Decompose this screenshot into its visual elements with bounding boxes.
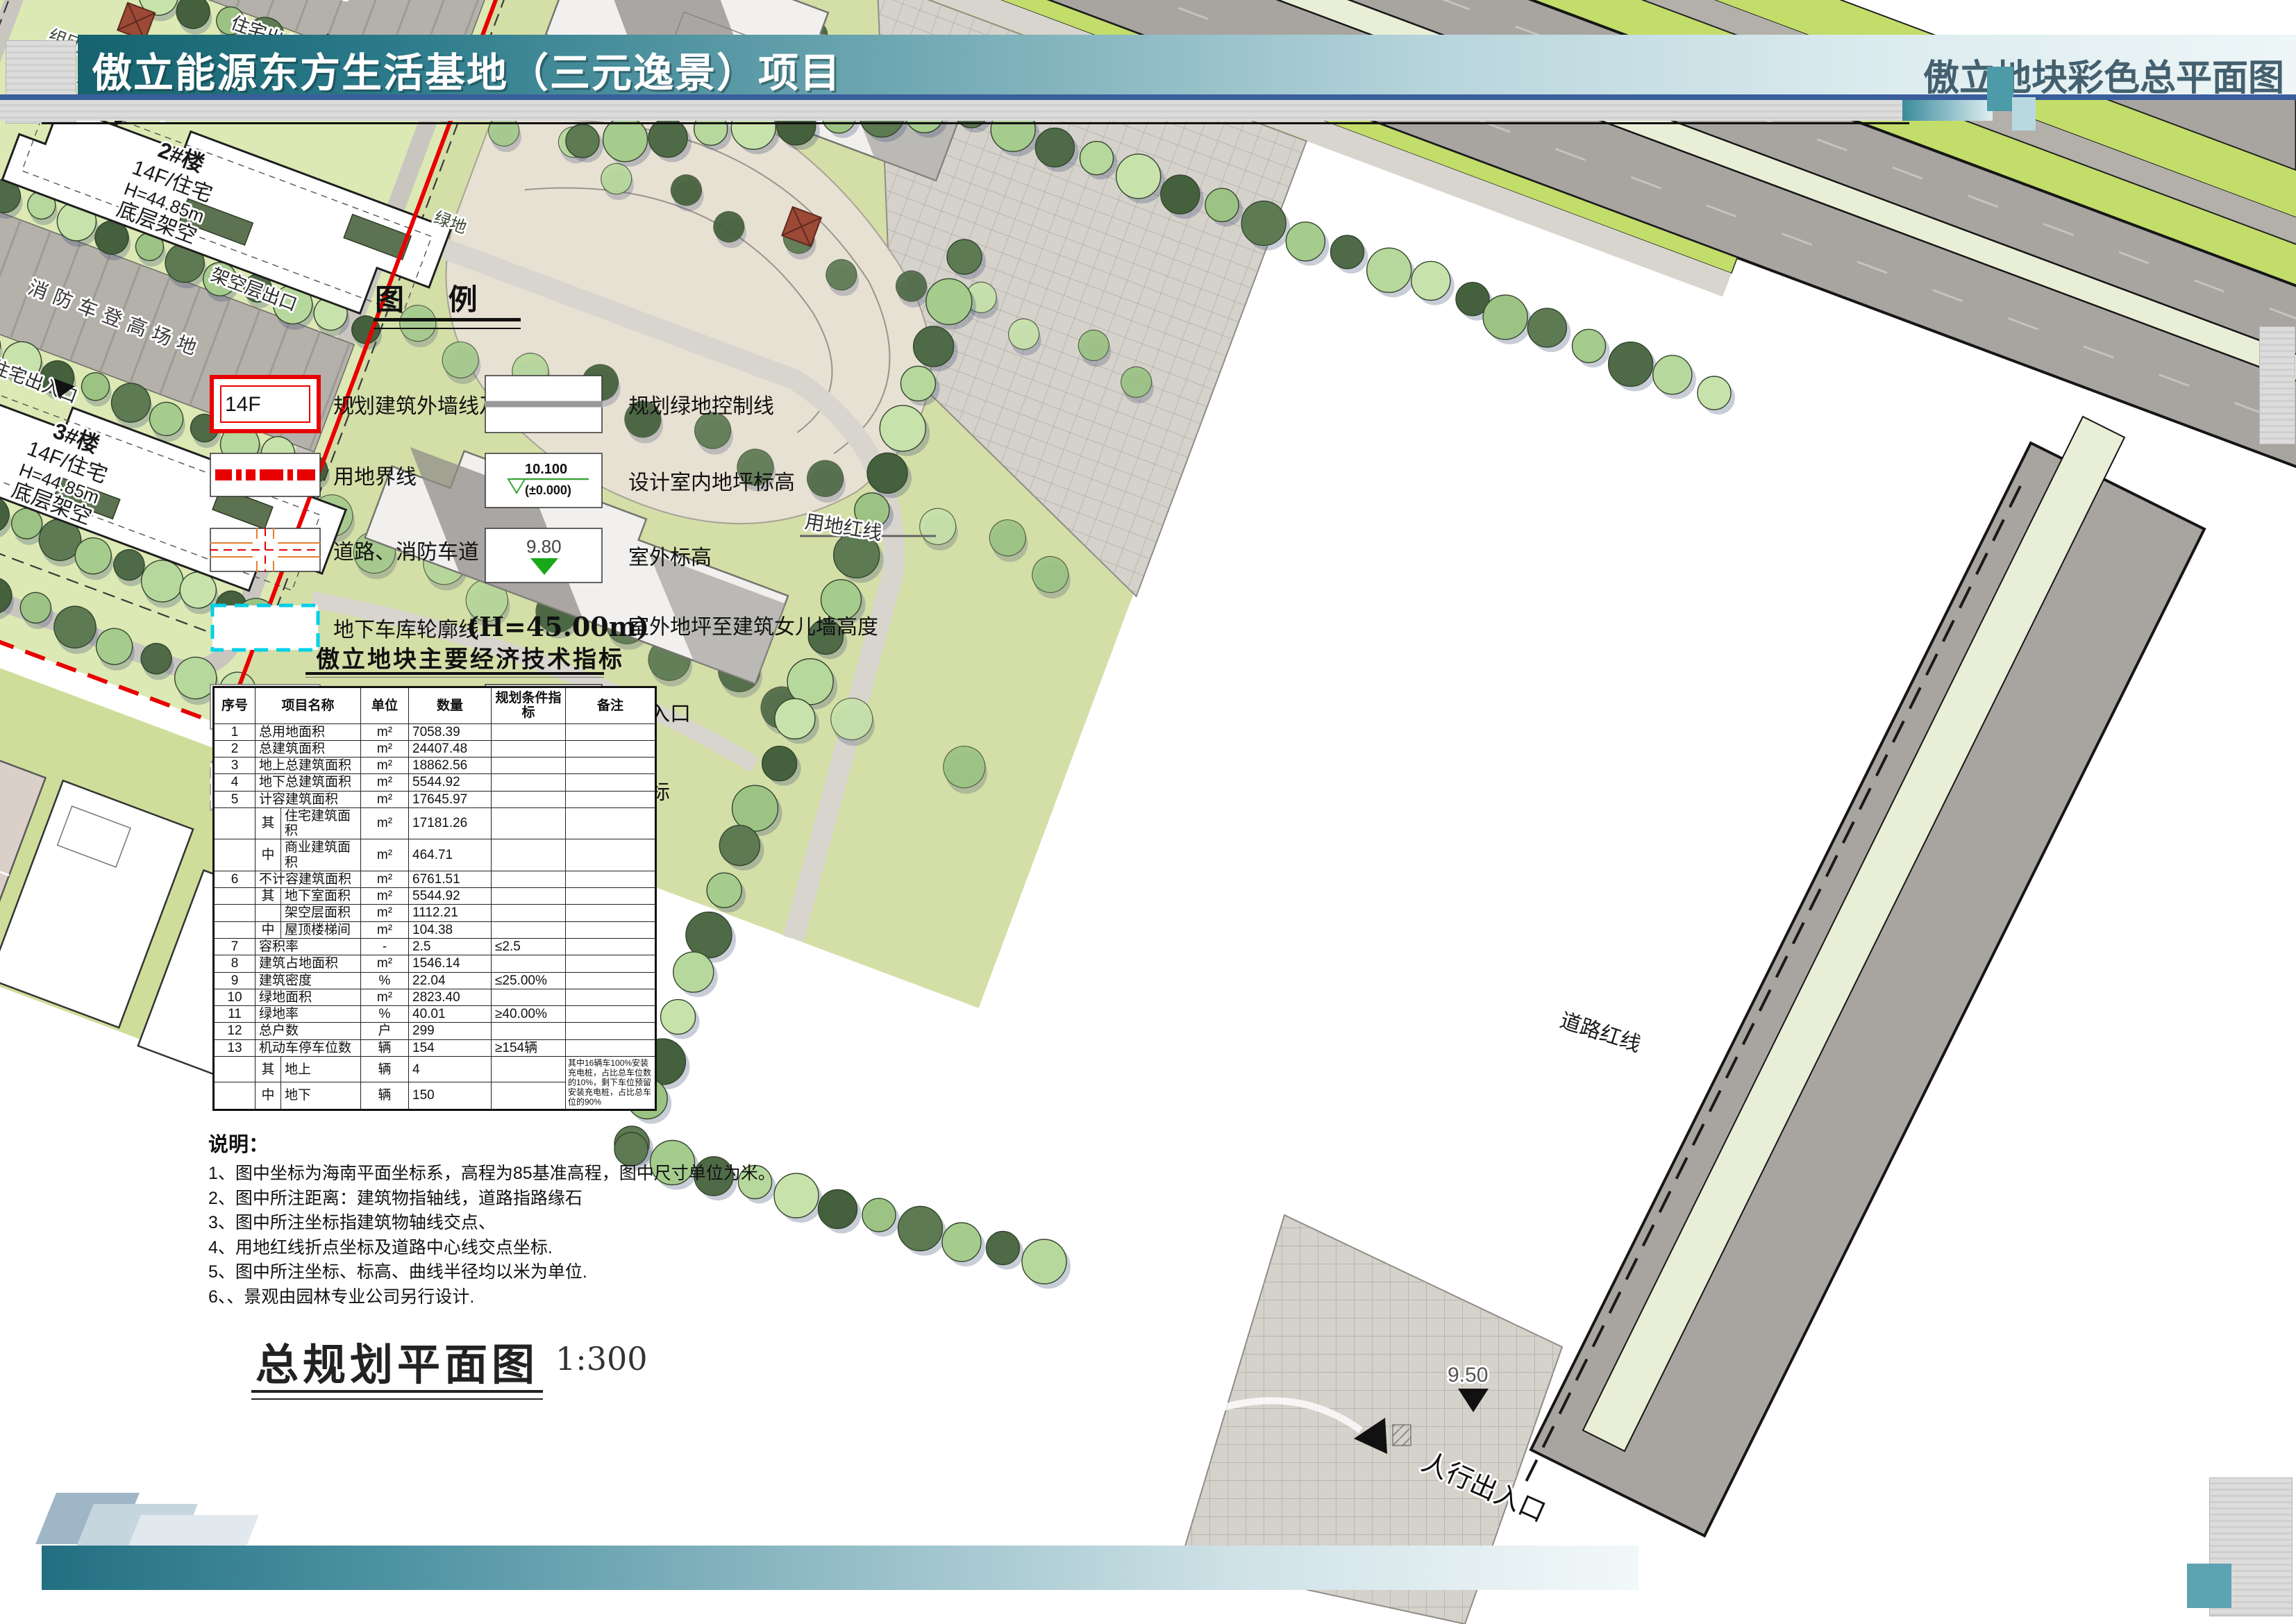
table-cell: 屋顶楼梯间	[281, 921, 361, 938]
note-item: 4、用地红线折点坐标及道路中心线交点坐标.	[208, 1236, 785, 1261]
table-cell: 其中16辆车100%安装充电桩，占比总车位数的10%，剩下车位预留安装充电桩，占…	[566, 1056, 656, 1110]
table-cell: 24407.48	[409, 740, 492, 757]
table-row: 5计容建筑面积m²17645.97	[214, 791, 656, 807]
table-row: 中商业建筑面积m²464.71	[214, 839, 656, 871]
drawing-sheet: 东 府 南 路	[0, 0, 2296, 1624]
table-cell	[492, 989, 566, 1005]
table-cell: m²	[361, 791, 409, 807]
table-cell: m²	[361, 774, 409, 791]
table-cell	[214, 807, 255, 839]
right-edge-decoration	[2259, 326, 2295, 444]
note-item: 6、、景观由园林专业公司另行设计.	[208, 1285, 785, 1310]
table-cell: 9	[214, 972, 255, 989]
table-cell: -	[361, 938, 409, 955]
table-cell: 154	[409, 1039, 492, 1056]
table-cell: %	[361, 972, 409, 989]
table-row: 8建筑占地面积m²1546.14	[214, 955, 656, 972]
table-cell: m²	[361, 921, 409, 938]
col-header-name: 项目名称	[255, 687, 361, 724]
table-cell	[492, 955, 566, 972]
table-cell	[566, 972, 656, 989]
note-item: 1、图中坐标为海南平面坐标系，高程为85基准高程，图中尺寸单位为米。	[208, 1162, 785, 1187]
table-cell: 户	[361, 1023, 409, 1039]
table-cell: 4	[409, 1056, 492, 1082]
legend-label: 室外标高	[628, 528, 712, 583]
table-cell	[492, 807, 566, 839]
table-row: 中屋顶楼梯间m²104.38	[214, 921, 656, 938]
table-cell: 架空层面积	[281, 905, 361, 921]
road-boundary-label: 道路红线	[1557, 1009, 1643, 1056]
table-title: 傲立地块主要经济技术指标	[316, 640, 624, 674]
legend-label: 室外地坪至建筑女儿墙高度	[628, 603, 878, 647]
table-cell: 6761.51	[409, 871, 492, 887]
table-cell: 地上	[281, 1056, 361, 1082]
notes-title: 说明：	[208, 1128, 785, 1157]
table-cell: 2	[214, 740, 255, 757]
table-cell	[566, 774, 656, 791]
table-cell: 3	[214, 757, 255, 774]
table-cell: 辆	[361, 1056, 409, 1082]
table-cell	[214, 921, 255, 938]
economic-indicator-table: 序号 项目名称 单位 数量 规划条件指标 备注 1总用地面积m²7058.392…	[212, 686, 657, 1111]
table-row: 1总用地面积m²7058.39	[214, 723, 656, 740]
header-gray-band	[0, 100, 1902, 121]
header-black-line	[42, 122, 1909, 124]
notes-list: 1、图中坐标为海南平面坐标系，高程为85基准高程，图中尺寸单位为米。2、图中所注…	[208, 1162, 785, 1309]
legend-indoor-level-sub: (±0.000)	[525, 483, 571, 497]
legend-symbol-site-boundary	[210, 453, 321, 497]
table-cell: 地上总建筑面积	[255, 757, 361, 774]
table-cell	[492, 723, 566, 740]
table-row: 其住宅建筑面积m²17181.26	[214, 807, 656, 839]
legend-symbol-green-control	[485, 375, 603, 433]
table-cell	[566, 839, 656, 871]
table-cell: 22.04	[409, 972, 492, 989]
table-cell: 其	[255, 807, 281, 839]
table-cell: 2823.40	[409, 989, 492, 1005]
legend-symbol-indoor-level: 10.100 (±0.000)	[485, 453, 603, 508]
table-cell: 464.71	[409, 839, 492, 871]
table-cell	[566, 938, 656, 955]
table-cell: %	[361, 1006, 409, 1023]
sheet-subtitle: 傲立地块彩色总平面图	[1750, 49, 2284, 101]
footer-square-teal	[2187, 1564, 2231, 1608]
table-cell: 计容建筑面积	[255, 791, 361, 807]
plan-title: 总规划平面图	[255, 1330, 539, 1392]
table-cell: 辆	[361, 1082, 409, 1110]
plan-title-rule	[251, 1390, 543, 1400]
table-cell: 地下总建筑面积	[255, 774, 361, 791]
table-cell: 中	[255, 839, 281, 871]
legend-label: 用地界线	[333, 453, 417, 497]
table-cell	[566, 1006, 656, 1023]
table-cell	[214, 1056, 255, 1082]
table-cell: 1	[214, 723, 255, 740]
legend-symbol-building-outline: 14F	[210, 375, 321, 433]
legend-label: 规划绿地控制线	[628, 375, 774, 433]
table-cell: 地下	[281, 1082, 361, 1110]
note-item: 5、图中所注坐标、标高、曲线半径均以米为单位.	[208, 1260, 785, 1285]
col-header-cond: 规划条件指标	[492, 687, 566, 724]
table-cell: m²	[361, 955, 409, 972]
col-header-qty: 数量	[409, 687, 492, 724]
table-cell: 建筑占地面积	[255, 955, 361, 972]
table-cell	[492, 757, 566, 774]
legend-title: 图 例	[375, 276, 496, 319]
table-cell	[492, 905, 566, 921]
table-cell: 总户数	[255, 1023, 361, 1039]
table-cell: 40.01	[409, 1006, 492, 1023]
header-square-light	[2012, 97, 2036, 131]
legend-label: 道路、消防车道	[333, 528, 479, 572]
table-cell: 建筑密度	[255, 972, 361, 989]
table-cell: 容积率	[255, 938, 361, 955]
table-cell	[566, 740, 656, 757]
table-cell: ≥154辆	[492, 1039, 566, 1056]
table-row: 11绿地率%40.01≥40.00%	[214, 1006, 656, 1023]
table-row: 10绿地面积m²2823.40	[214, 989, 656, 1005]
table-cell	[566, 1023, 656, 1039]
table-cell: 17645.97	[409, 791, 492, 807]
table-cell	[566, 757, 656, 774]
legend-symbol-garage-outline	[210, 603, 321, 653]
sheet-title: 傲立能源东方生活基地（三元逸景）项目	[92, 40, 841, 99]
table-cell: 12	[214, 1023, 255, 1039]
table-cell	[566, 921, 656, 938]
table-cell: 7	[214, 938, 255, 955]
table-cell: 13	[214, 1039, 255, 1056]
legend-title-rule	[374, 318, 521, 329]
table-cell	[492, 791, 566, 807]
table-row: 其地上辆4其中16辆车100%安装充电桩，占比总车位数的10%，剩下车位预留安装…	[214, 1056, 656, 1082]
table-cell	[214, 905, 255, 921]
header-gradient-block	[1902, 100, 1993, 121]
table-cell: 104.38	[409, 921, 492, 938]
note-item: 2、图中所注距离：建筑物指轴线，道路指路缘石	[208, 1187, 785, 1212]
table-cell	[566, 989, 656, 1005]
elevation-label: 9.50	[1448, 1364, 1488, 1387]
table-cell	[566, 723, 656, 740]
col-header-remark: 备注	[566, 687, 656, 724]
table-cell	[492, 888, 566, 905]
header-rule	[0, 94, 2296, 100]
table-cell	[566, 871, 656, 887]
table-cell	[214, 839, 255, 871]
table-row: 9建筑密度%22.04≤25.00%	[214, 972, 656, 989]
table-cell	[255, 905, 281, 921]
legend-symbol-road	[210, 528, 321, 572]
table-cell: 8	[214, 955, 255, 972]
table-cell: 总用地面积	[255, 723, 361, 740]
legend-symbol-outdoor-level: 9.80	[485, 528, 603, 583]
table-cell: m²	[361, 757, 409, 774]
table-cell: 18862.56	[409, 757, 492, 774]
table-cell: 中	[255, 1082, 281, 1110]
table-cell	[566, 1039, 656, 1056]
legend-outdoor-level-value: 9.80	[526, 536, 562, 557]
table-cell: 辆	[361, 1039, 409, 1056]
table-cell: m²	[361, 888, 409, 905]
legend-height-text: (H=45.00m)	[467, 611, 649, 642]
col-header-unit: 单位	[361, 687, 409, 724]
table-cell: m²	[361, 989, 409, 1005]
table-cell: 绿地率	[255, 1006, 361, 1023]
table-cell: 机动车停车位数	[255, 1039, 361, 1056]
table-cell	[214, 1082, 255, 1110]
notes-block: 说明： 1、图中坐标为海南平面坐标系，高程为85基准高程，图中尺寸单位为米。2、…	[208, 1128, 785, 1309]
table-row: 3地上总建筑面积m²18862.56	[214, 757, 656, 774]
table-row: 6不计容建筑面积m²6761.51	[214, 871, 656, 887]
table-cell: m²	[361, 839, 409, 871]
table-cell: 不计容建筑面积	[255, 871, 361, 887]
table-cell	[566, 807, 656, 839]
table-cell: m²	[361, 723, 409, 740]
table-row: 其地下室面积m²5544.92	[214, 888, 656, 905]
table-cell: 5544.92	[409, 888, 492, 905]
table-row: 13机动车停车位数辆154≥154辆	[214, 1039, 656, 1056]
table-cell: 中	[255, 921, 281, 938]
table-cell: 6	[214, 871, 255, 887]
table-cell: 17181.26	[409, 807, 492, 839]
table-cell: 其	[255, 888, 281, 905]
legend-label: 设计室内地坪标高	[628, 453, 795, 508]
legend-14f-text: 14F	[225, 393, 261, 416]
table-cell	[566, 955, 656, 972]
table-cell: 住宅建筑面积	[281, 807, 361, 839]
note-item: 3、图中所注坐标指建筑物轴线交点、	[208, 1211, 785, 1236]
table-cell: ≤25.00%	[492, 972, 566, 989]
table-cell: ≥40.00%	[492, 1006, 566, 1023]
table-cell	[566, 888, 656, 905]
header-square-teal	[1987, 67, 2013, 111]
table-cell	[492, 1082, 566, 1110]
table-title-rule	[305, 672, 604, 678]
footer-band	[42, 1546, 1639, 1590]
table-cell	[492, 740, 566, 757]
table-cell: 其	[255, 1056, 281, 1082]
table-row: 2总建筑面积m²24407.48	[214, 740, 656, 757]
table-cell: 299	[409, 1023, 492, 1039]
table-cell: 150	[409, 1082, 492, 1110]
table-cell: 地下室面积	[281, 888, 361, 905]
table-cell: 总建筑面积	[255, 740, 361, 757]
table-cell: m²	[361, 871, 409, 887]
table-row: 12总户数户299	[214, 1023, 656, 1039]
table-cell	[566, 791, 656, 807]
table-cell	[492, 871, 566, 887]
table-cell: m²	[361, 807, 409, 839]
table-row: 7容积率-2.5≤2.5	[214, 938, 656, 955]
table-cell: 1112.21	[409, 905, 492, 921]
table-cell: m²	[361, 905, 409, 921]
table-cell	[492, 774, 566, 791]
table-cell: 绿地面积	[255, 989, 361, 1005]
table-cell: 1546.14	[409, 955, 492, 972]
table-cell: 7058.39	[409, 723, 492, 740]
table-cell: ≤2.5	[492, 938, 566, 955]
table-cell	[492, 921, 566, 938]
table-cell	[492, 839, 566, 871]
table-row: 4地下总建筑面积m²5544.92	[214, 774, 656, 791]
table-cell: 5544.92	[409, 774, 492, 791]
legend-indoor-level-value: 10.100	[525, 462, 567, 477]
table-cell: m²	[361, 740, 409, 757]
col-header-no: 序号	[214, 687, 255, 724]
table-cell	[566, 905, 656, 921]
table-cell: 11	[214, 1006, 255, 1023]
table-row: 架空层面积m²1112.21	[214, 905, 656, 921]
table-cell	[492, 1023, 566, 1039]
table-cell	[492, 1056, 566, 1082]
table-cell: 2.5	[409, 938, 492, 955]
table-cell	[214, 888, 255, 905]
table-cell: 商业建筑面积	[281, 839, 361, 871]
table-cell: 5	[214, 791, 255, 807]
table-cell: 10	[214, 989, 255, 1005]
plan-scale: 1:300	[555, 1340, 648, 1378]
table-cell: 4	[214, 774, 255, 791]
